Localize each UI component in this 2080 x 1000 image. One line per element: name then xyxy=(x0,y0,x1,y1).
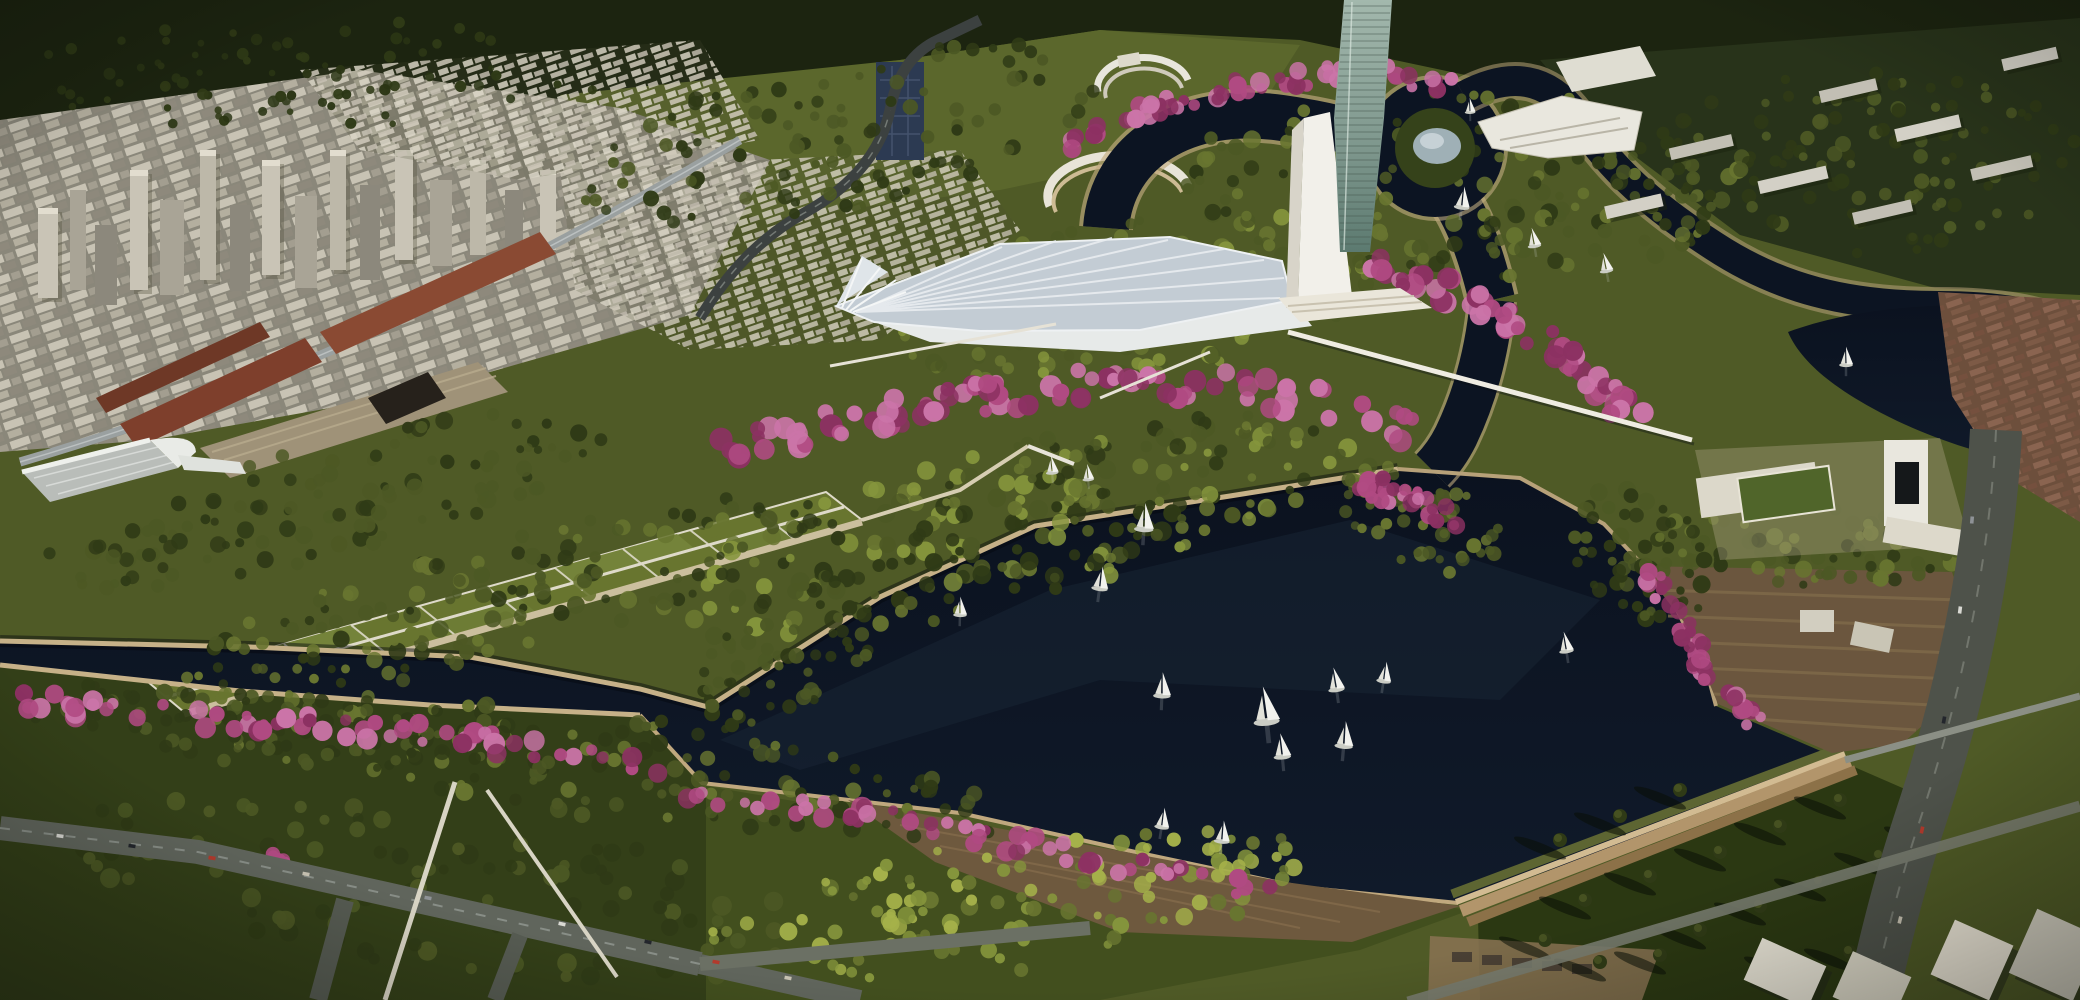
aerial-rendering xyxy=(0,0,2080,1000)
vignette xyxy=(0,0,2080,1000)
scene-svg xyxy=(0,0,2080,1000)
